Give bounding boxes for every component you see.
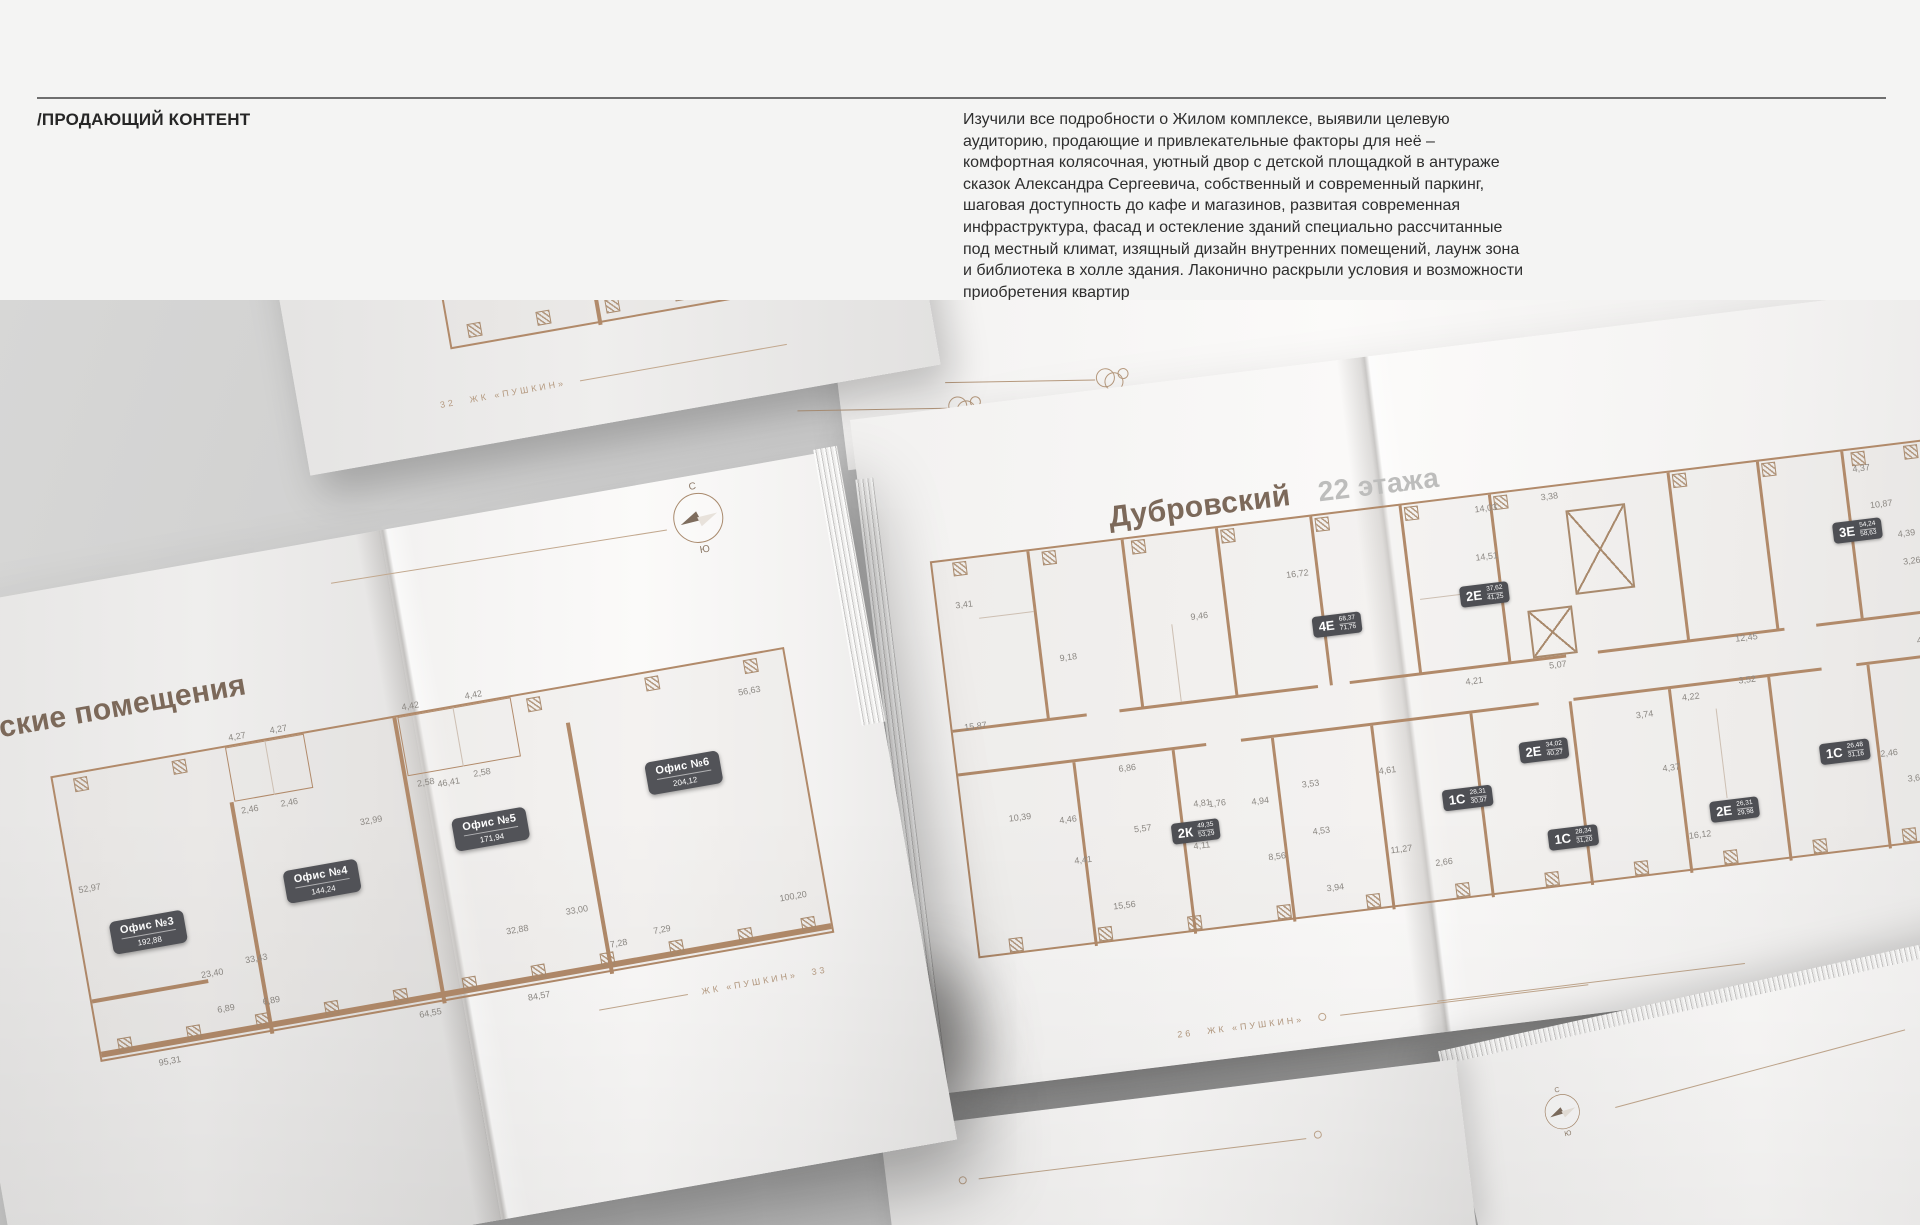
dim-label: 3,74 <box>1635 708 1654 720</box>
dim-label: 16,12 <box>1688 828 1712 841</box>
dim-label: 10,39 <box>1008 811 1032 824</box>
page-number: 26 <box>1177 1028 1194 1040</box>
dim-label: 3,52 <box>1738 674 1757 686</box>
dim-label: 23,40 <box>200 966 224 980</box>
divider-rule <box>37 97 1886 99</box>
footer-glyph-icon <box>958 1176 967 1185</box>
office-badge: Офис №5 171,94 <box>451 806 530 851</box>
dim-label: 14,51 <box>1475 550 1499 563</box>
unit-type: 2Е <box>1715 802 1733 819</box>
dim-label: 7,29 <box>652 923 671 936</box>
header-section: /ПРОДАЮЩИЙ КОНТЕНТ Изучили все подробнос… <box>0 0 1920 300</box>
dim-label: 3,67 <box>1907 772 1920 784</box>
brand-footer: ЖК «ПУШКИН» <box>469 378 567 405</box>
dim-label: 4,37 <box>1852 462 1871 474</box>
dim-label: 4,46 <box>1059 813 1078 825</box>
stair-shaft <box>1565 503 1635 595</box>
dim-label: 4,37 <box>1662 761 1681 773</box>
office-badge: Офис №6 204,12 <box>644 750 723 795</box>
dim-label: 32,99 <box>359 813 383 827</box>
office-badge: Офис №3 192,88 <box>109 909 188 954</box>
dim-label: 46,41 <box>437 775 461 789</box>
intro-paragraph: Изучили все подробности о Жилом комплекс… <box>963 109 1525 303</box>
dim-label: 4,81 <box>1193 797 1212 809</box>
dim-label: 6,89 <box>217 1002 236 1015</box>
dim-label: 5,57 <box>1133 822 1152 834</box>
dim-label: 4,61 <box>1378 764 1397 776</box>
dim-label: 4,21 <box>1465 675 1484 687</box>
dim-label: 3,41 <box>955 598 974 610</box>
apartments-floor-plan: 4Е 68,3771,76 2Е 37,6241,25 3Е 54,2458,6… <box>930 439 1920 958</box>
dim-label: 100,20 <box>779 889 808 904</box>
dim-label: 3,94 <box>1326 881 1345 893</box>
dim-label: 10,87 <box>1869 498 1893 511</box>
dim-label: 4,41 <box>1074 854 1093 866</box>
page-number: 32 <box>439 397 457 410</box>
dim-label: 2,58 <box>416 776 435 789</box>
unit-type: 1С <box>1553 830 1571 847</box>
unit-type: 2К <box>1177 824 1194 841</box>
unit-type: 3Е <box>1838 523 1856 540</box>
dim-label: 2,66 <box>1435 856 1454 868</box>
unit-type: 2Е <box>1465 587 1483 604</box>
unit-badge: 2Е 26,3129,98 <box>1709 796 1760 823</box>
page-footer: 32 ЖК «ПУШКИН» <box>439 339 787 410</box>
dim-label: 15,56 <box>1113 899 1137 912</box>
dim-label: 6,89 <box>262 994 281 1007</box>
left-spread: ские помещения С Ю <box>0 450 957 1225</box>
unit-badge: 4Е 68,3771,76 <box>1311 611 1362 638</box>
dim-label: 33,00 <box>565 903 589 917</box>
dim-label: 6,86 <box>1118 762 1137 774</box>
unit-badge: 2Е 34,0240,27 <box>1518 737 1569 764</box>
section-label: /ПРОДАЮЩИЙ КОНТЕНТ <box>37 110 250 130</box>
dim-label: 56,63 <box>737 684 761 698</box>
deco-line <box>1615 1029 1905 1108</box>
dim-label: 12,45 <box>1735 631 1759 644</box>
unit-badge: 1С 28,3431,20 <box>1547 824 1599 851</box>
dim-label: 4,94 <box>1251 795 1270 807</box>
dim-label: 2,46 <box>240 803 259 816</box>
dim-label: 4,39 <box>1897 527 1916 539</box>
unit-type: 2Е <box>1525 743 1543 760</box>
office-badge: Офис №4 144,24 <box>282 859 361 904</box>
dim-label: 3,53 <box>1301 778 1320 790</box>
footer-glyph-icon <box>1313 1130 1322 1139</box>
dim-label: 4,22 <box>1681 691 1700 703</box>
brand-footer: ЖК «ПУШКИН» <box>1207 1014 1305 1036</box>
dim-label: 2,46 <box>280 796 299 809</box>
mockup-photo: 95,31 32 ЖК «ПУШКИН» Дубровский22 этажа <box>0 300 1920 1225</box>
dim-label: 2,58 <box>472 766 491 779</box>
dim-label: 32,88 <box>505 923 529 937</box>
dim-label: 7,28 <box>609 937 628 950</box>
dim-label: 11,27 <box>1390 843 1413 856</box>
dim-label: 9,46 <box>1190 610 1209 622</box>
unit-badge: 1С 26,4831,16 <box>1819 738 1871 765</box>
dim-label: 2,46 <box>1880 747 1899 759</box>
compass-south-label: Ю <box>699 543 711 556</box>
dim-label: 9,18 <box>1059 651 1078 663</box>
floor-plan-fragment: 95,31 <box>411 300 746 349</box>
unit-type: 1С <box>1825 745 1843 762</box>
unit-type: 4Е <box>1318 618 1336 635</box>
dim-label: 8,56 <box>1268 850 1287 862</box>
unit-type: 1С <box>1448 791 1466 808</box>
footer-glyph-icon <box>1318 1012 1327 1021</box>
dim-label: 4,11 <box>1193 839 1211 851</box>
dim-label: 4,53 <box>1312 825 1331 837</box>
dim-label: 33,43 <box>244 951 268 965</box>
dim-label: 4,04 <box>1916 634 1920 646</box>
elevator-shaft <box>1527 605 1578 658</box>
unit-badge: 3Е 54,2458,63 <box>1832 517 1883 544</box>
dim-label: 3,38 <box>1540 490 1559 502</box>
dim-label: 15,87 <box>964 720 988 733</box>
dim-label: 3,26 <box>1903 555 1920 567</box>
dim-label: 14,03 <box>1474 502 1498 515</box>
dim-label: 52,97 <box>78 881 102 895</box>
dim-label: 16,72 <box>1286 567 1310 580</box>
dim-label: 5,07 <box>1549 659 1568 671</box>
deco-line <box>979 1138 1307 1179</box>
right-spread: Дубровский22 этажа <box>850 300 1920 1095</box>
unit-badge: 1С 28,3130,97 <box>1442 785 1494 812</box>
